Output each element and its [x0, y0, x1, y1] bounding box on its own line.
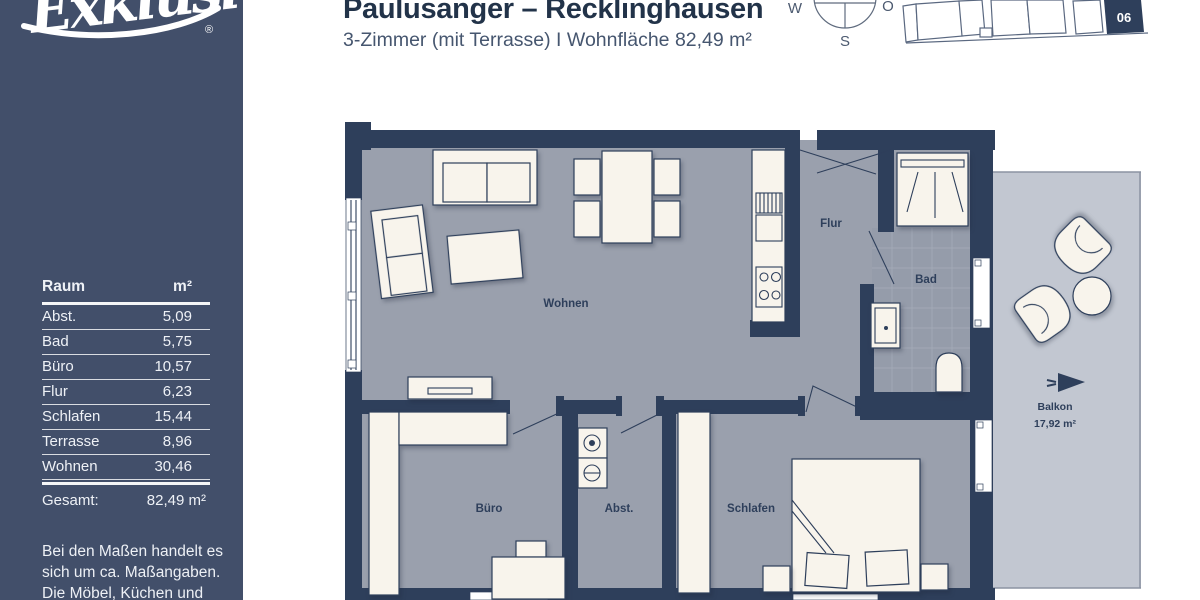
- sidebar: Exklusiv ® Raum m² Abst. 5,09 Bad 5,75 B…: [0, 0, 243, 600]
- wardrobe: [678, 412, 710, 593]
- room-area: 15,44: [154, 408, 210, 426]
- room-name: Schlafen: [42, 408, 100, 426]
- table-row: Terrasse 8,96: [42, 430, 210, 455]
- table-total-row: Gesamt: 82,49 m²: [42, 482, 210, 509]
- table-row: Wohnen 30,46: [42, 455, 210, 480]
- label-schlafen: Schlafen: [727, 503, 775, 515]
- room-area: 5,75: [163, 333, 210, 351]
- registered-mark: ®: [205, 24, 213, 36]
- nightstand: [763, 566, 790, 592]
- compass-south: S: [840, 33, 850, 50]
- label-balkon-area: 17,92 m²: [1034, 418, 1077, 430]
- brand-logo: Exklusiv ®: [0, 0, 243, 115]
- bed: [792, 459, 920, 592]
- keyplan-unit-label: 06: [1117, 10, 1131, 25]
- room-name: Abst.: [42, 308, 76, 326]
- compass-icon: W O S: [788, 0, 894, 50]
- table-header: Raum m²: [42, 276, 210, 305]
- balcony: Balkon 17,92 m²: [993, 172, 1141, 588]
- room-name: Flur: [42, 383, 68, 401]
- label-bad: Bad: [915, 274, 937, 286]
- table-row: Flur 6,23: [42, 380, 210, 405]
- sofa: [433, 150, 537, 205]
- label-buero: Büro: [476, 503, 503, 515]
- label-balkon: Balkon: [1037, 401, 1072, 413]
- compass-east: O: [882, 0, 894, 15]
- armchair: [371, 205, 433, 299]
- washer-dryer-icon: [578, 428, 607, 488]
- table-row: Büro 10,57: [42, 355, 210, 380]
- toilet: [936, 353, 962, 392]
- vanity: [871, 303, 900, 348]
- room-name: Wohnen: [42, 458, 98, 476]
- room-name: Bad: [42, 333, 69, 351]
- shower: [897, 153, 968, 226]
- balcony-table: [1073, 277, 1111, 315]
- table-row: Bad 5,75: [42, 330, 210, 355]
- room-area: 30,46: [154, 458, 210, 476]
- page-title: Paulusanger – Recklinghausen: [343, 0, 763, 26]
- disclaimer-line: Die Möbel, Küchen und: [42, 583, 232, 600]
- label-flur: Flur: [820, 218, 842, 230]
- coffee-table: [447, 230, 523, 284]
- room-area: 6,23: [163, 383, 210, 401]
- label-wohnen: Wohnen: [543, 298, 588, 310]
- building-keyplan: 06: [903, 0, 1148, 43]
- table-row: Schlafen 15,44: [42, 405, 210, 430]
- table-row: Abst. 5,09: [42, 305, 210, 330]
- col-header-area: m²: [173, 278, 210, 296]
- total-label: Gesamt:: [42, 492, 99, 509]
- room-name: Terrasse: [42, 433, 100, 451]
- room-area-table: Raum m² Abst. 5,09 Bad 5,75 Büro 10,57 F…: [42, 276, 210, 509]
- room-area: 10,57: [154, 358, 210, 376]
- page-subtitle: 3-Zimmer (mit Terrasse) I Wohnfläche 82,…: [343, 29, 752, 52]
- kitchen-counter: [752, 150, 785, 322]
- disclaimer-line: Bei den Maßen handelt es: [42, 541, 232, 562]
- room-name: Büro: [42, 358, 74, 376]
- col-header-room: Raum: [42, 278, 85, 296]
- sideboard: [408, 377, 492, 399]
- total-value: 82,49 m²: [147, 492, 210, 509]
- nightstand: [921, 564, 948, 590]
- label-abst: Abst.: [605, 503, 634, 515]
- room-area: 8,96: [163, 433, 210, 451]
- disclaimer-text: Bei den Maßen handelt es sich um ca. Maß…: [42, 541, 232, 600]
- compass-west: W: [788, 0, 803, 17]
- room-area: 5,09: [163, 308, 210, 326]
- disclaimer-line: sich um ca. Maßangaben.: [42, 562, 232, 583]
